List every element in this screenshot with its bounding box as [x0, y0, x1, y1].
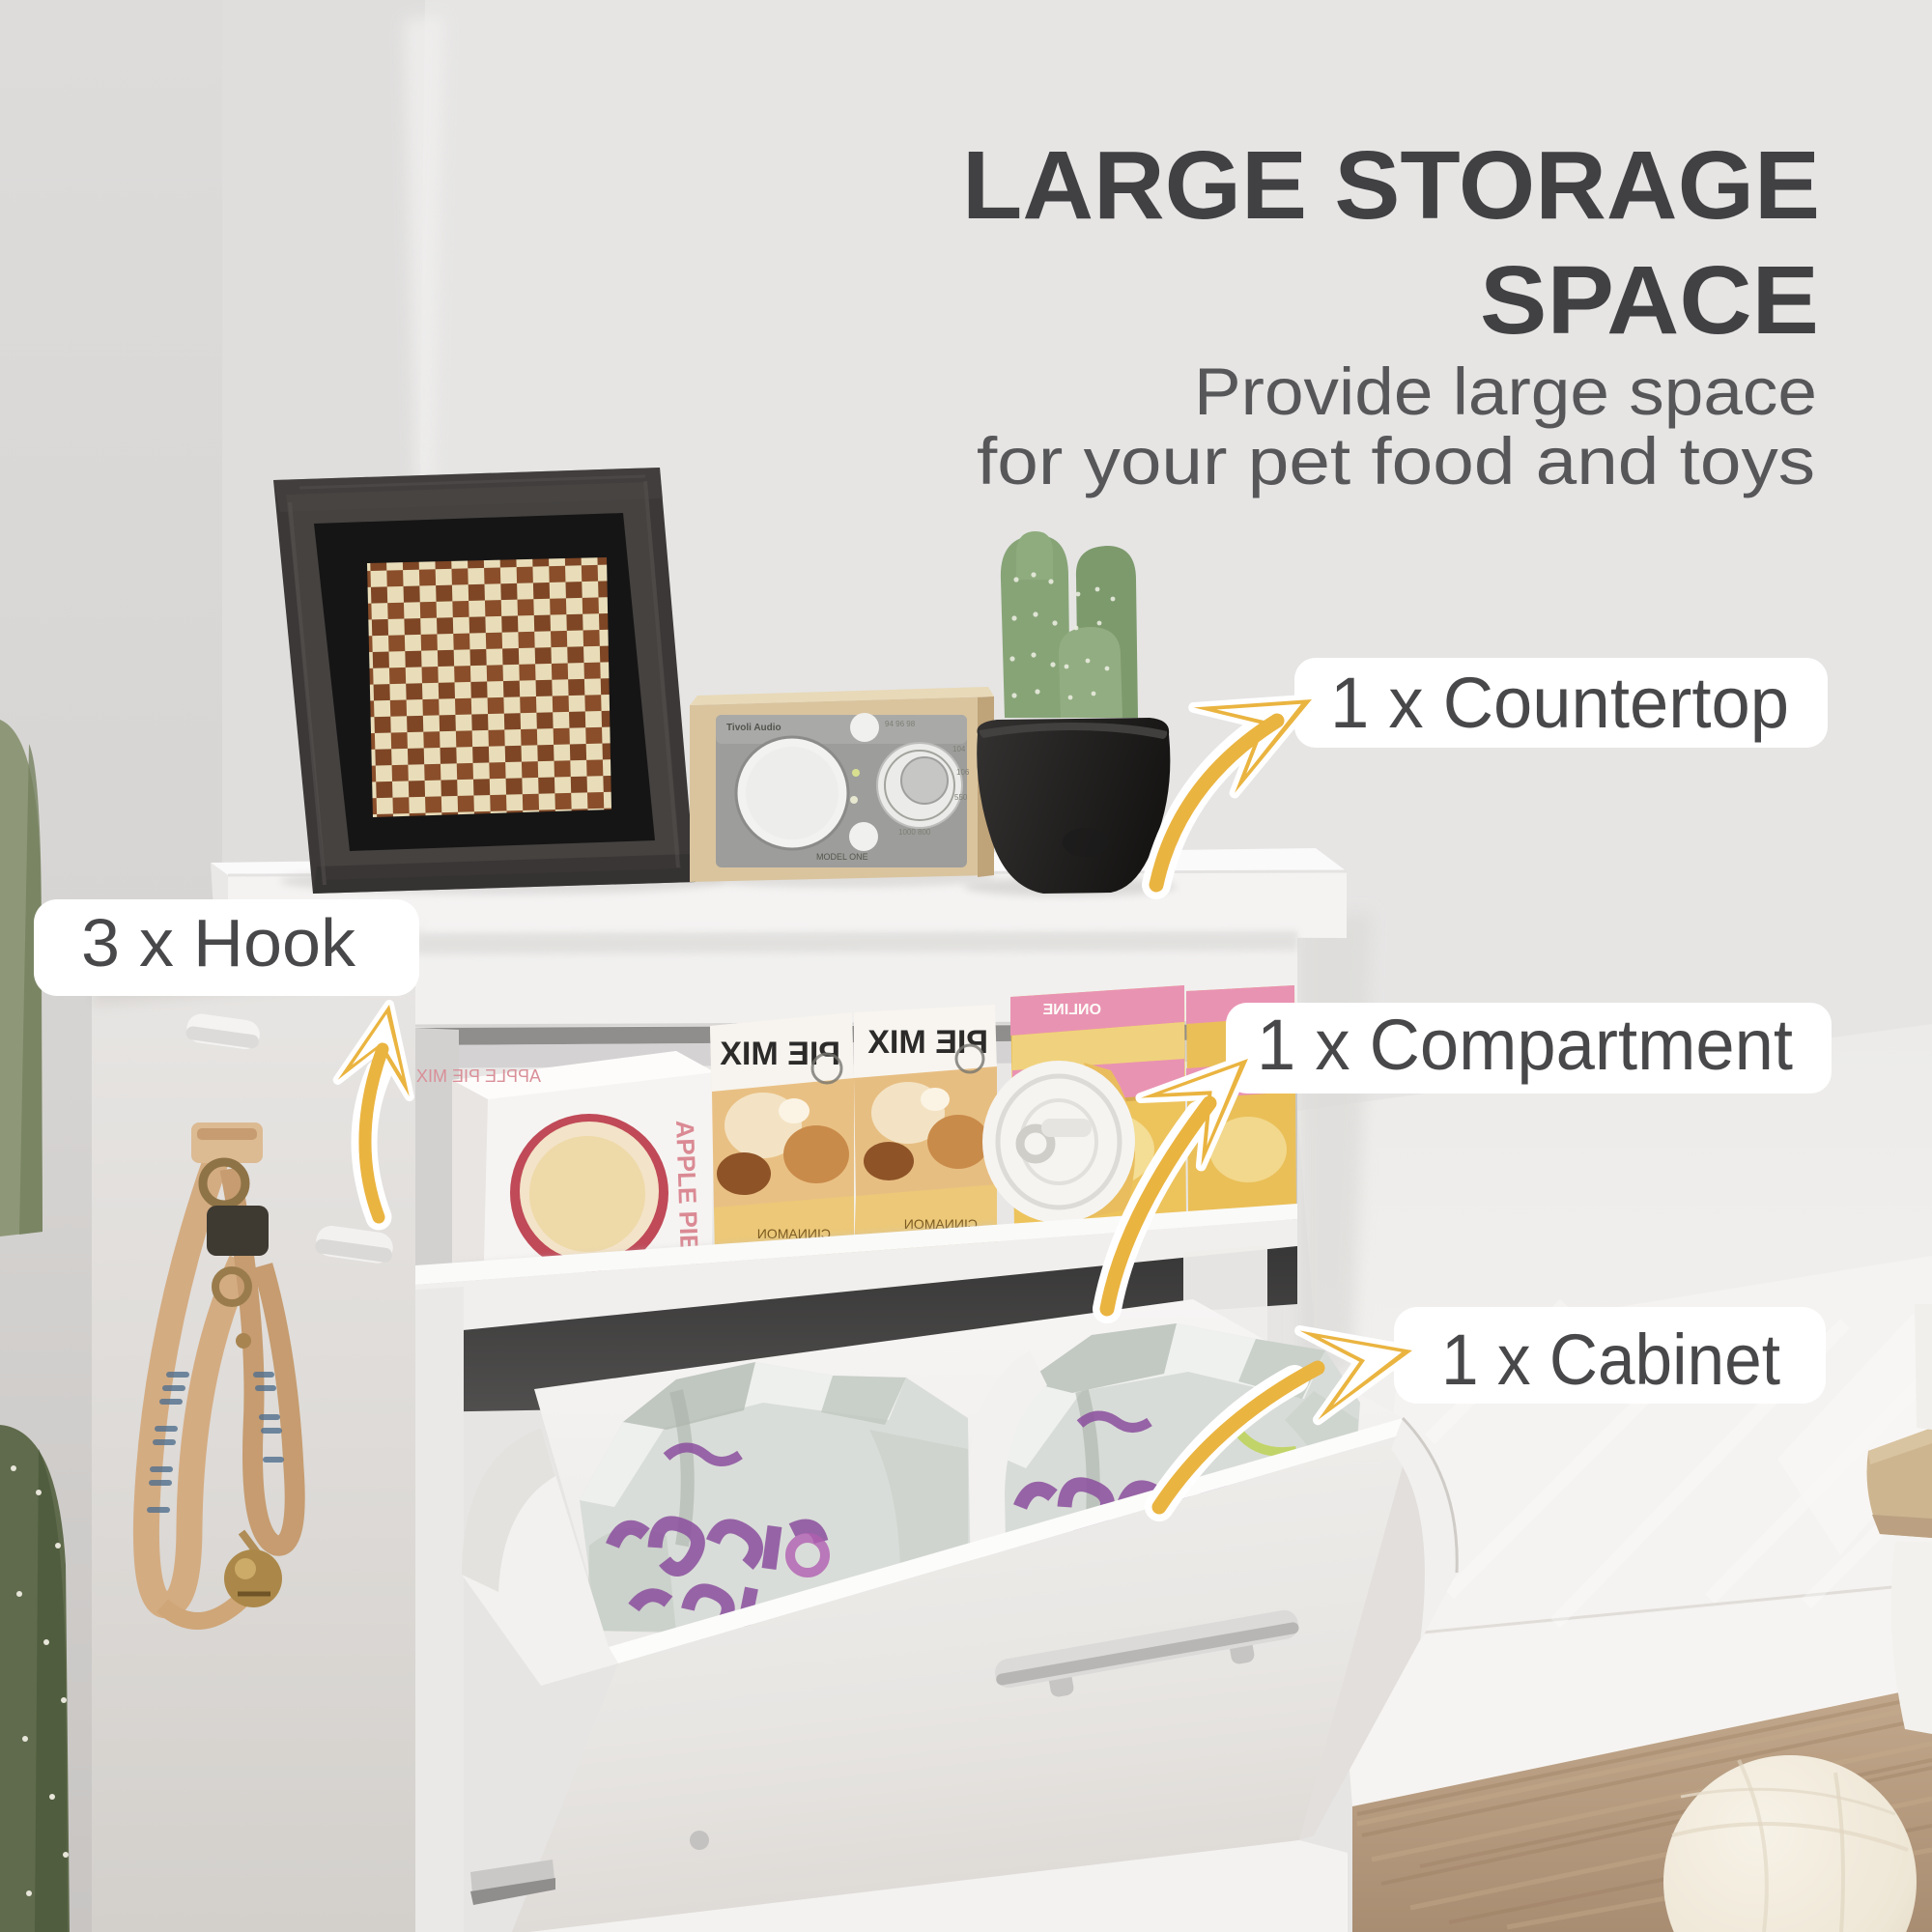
svg-text:APPLE PIE MIX: APPLE PIE MIX: [416, 1066, 541, 1086]
svg-text:for your pet food and toys: for your pet food and toys: [977, 424, 1815, 498]
svg-text:1000 800: 1000 800: [898, 828, 931, 837]
svg-text:MODEL ONE: MODEL ONE: [816, 852, 868, 862]
svg-text:ONLINE: ONLINE: [1042, 1002, 1101, 1018]
svg-text:Provide large space: Provide large space: [1194, 355, 1817, 429]
svg-text:1 x Countertop: 1 x Countertop: [1330, 663, 1789, 743]
svg-text:LARGE STORAGE: LARGE STORAGE: [962, 131, 1820, 240]
svg-text:Tivoli Audio: Tivoli Audio: [726, 723, 781, 733]
svg-text:550: 550: [954, 793, 968, 802]
svg-text:3 x Hook: 3 x Hook: [81, 905, 356, 980]
svg-text:PIE MIX: PIE MIX: [867, 1024, 988, 1061]
svg-text:106: 106: [956, 768, 970, 777]
svg-text:SPACE: SPACE: [1480, 246, 1819, 355]
svg-text:94 96 98: 94 96 98: [885, 720, 916, 728]
svg-text:104: 104: [952, 745, 966, 753]
svg-text:1 x Compartment: 1 x Compartment: [1257, 1005, 1793, 1085]
svg-text:1 x Cabinet: 1 x Cabinet: [1441, 1320, 1780, 1400]
